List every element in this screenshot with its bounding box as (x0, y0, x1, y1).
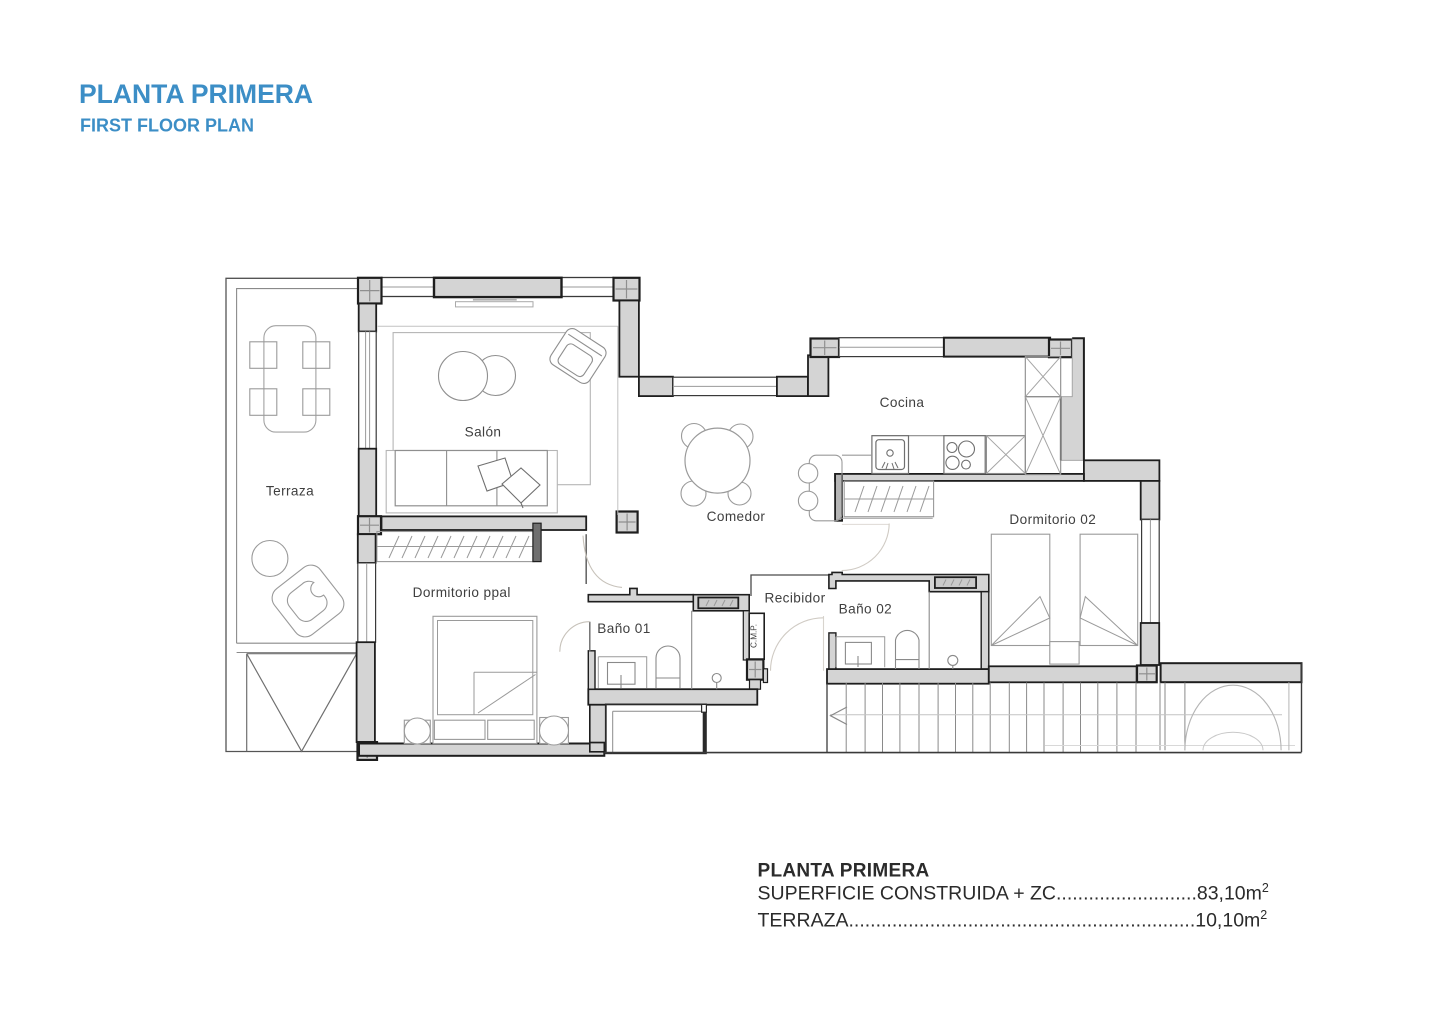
svg-text:PLANTA PRIMERA: PLANTA PRIMERA (79, 79, 313, 109)
svg-text:Baño 02: Baño 02 (839, 602, 892, 617)
svg-text:FIRST FLOOR PLAN: FIRST FLOOR PLAN (80, 116, 254, 136)
svg-text:C.M.P.: C.M.P. (750, 624, 759, 648)
svg-text:TERRAZA.......................: TERRAZA.................................… (758, 908, 1268, 932)
svg-text:Terraza: Terraza (266, 484, 314, 499)
svg-text:Cocina: Cocina (880, 395, 925, 410)
svg-text:PLANTA PRIMERA: PLANTA PRIMERA (758, 861, 930, 882)
svg-text:Dormitorio ppal: Dormitorio ppal (413, 585, 511, 600)
svg-text:Salón: Salón (465, 425, 502, 440)
svg-text:Dormitorio 02: Dormitorio 02 (1009, 512, 1096, 527)
svg-text:Recibidor: Recibidor (764, 591, 825, 606)
svg-text:Comedor: Comedor (707, 509, 766, 524)
svg-text:SUPERFICIE CONSTRUIDA + ZC....: SUPERFICIE CONSTRUIDA + ZC..............… (758, 881, 1269, 905)
svg-text:Baño 01: Baño 01 (597, 621, 650, 636)
